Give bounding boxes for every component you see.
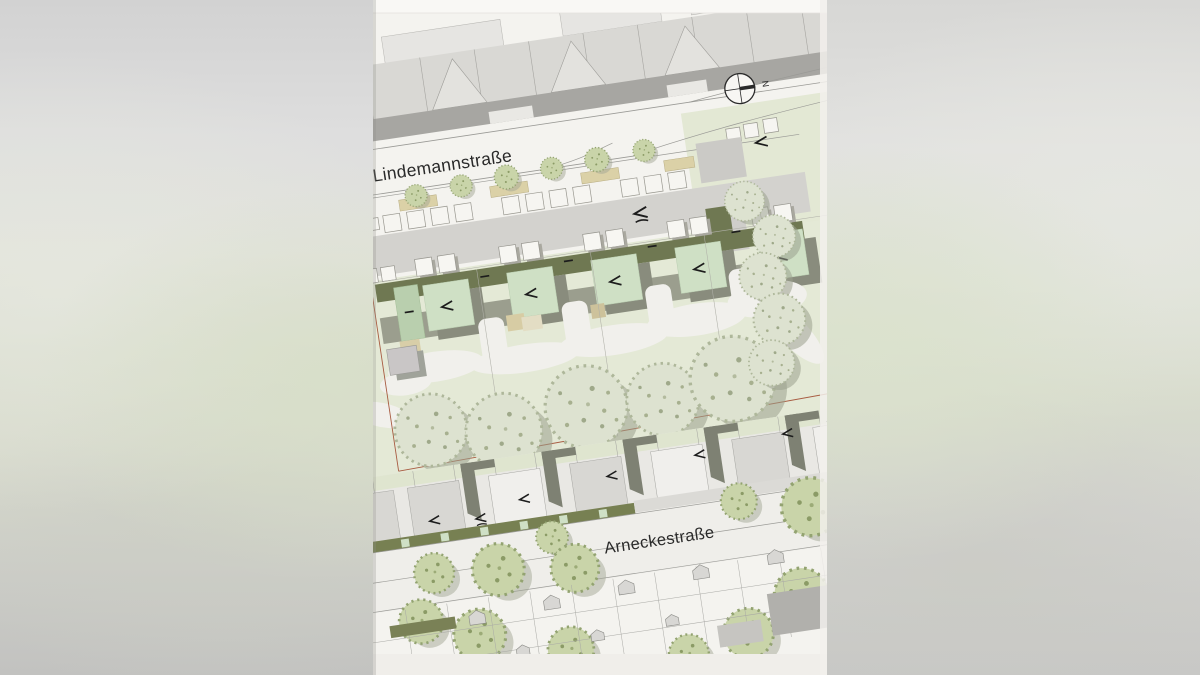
- tilted-plan-content: Lindemannstraße N: [373, 0, 827, 675]
- news-photo-stage: Lindemannstraße N: [0, 0, 1200, 675]
- site-plan-scan: Lindemannstraße N: [373, 0, 827, 675]
- site-plan-svg: Lindemannstraße N: [373, 0, 827, 675]
- letterbox-left-blur: [0, 0, 373, 675]
- letterbox-right-blur: [827, 0, 1200, 675]
